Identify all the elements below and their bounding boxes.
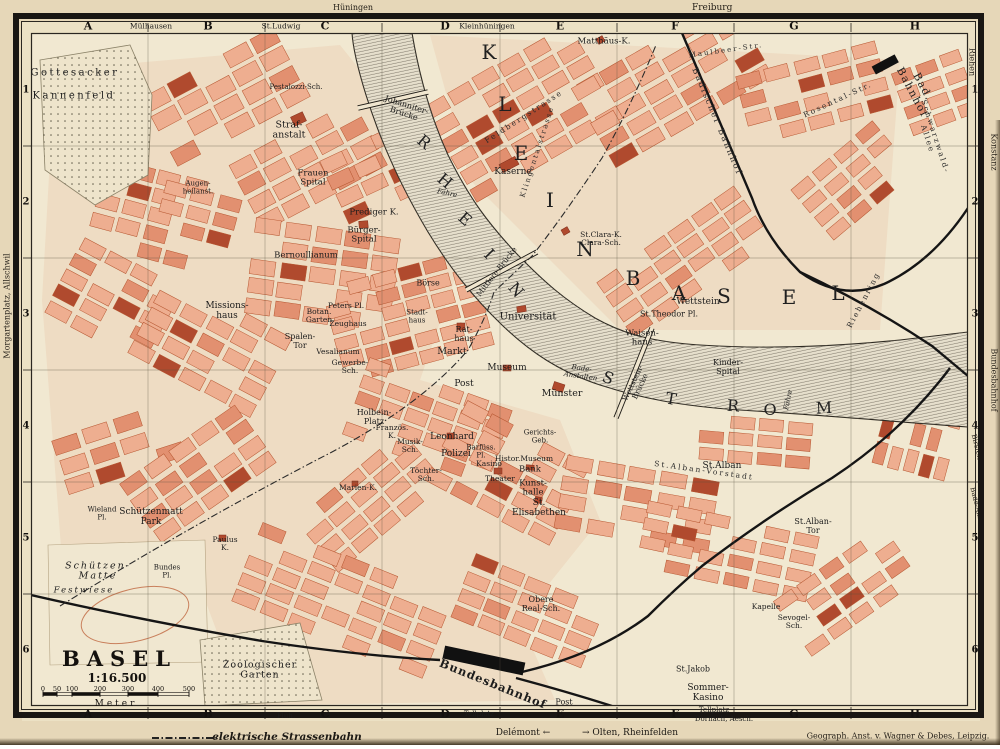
- map-sheet: Hüningen Freiburg Morgartenplatz, Allsch…: [0, 0, 1000, 745]
- map-scale-ratio: 1:16.500: [88, 671, 147, 685]
- exit-freiburg: Freiburg: [692, 3, 732, 13]
- exit-olten-rheinfelden: → Olten, Rheinfelden: [582, 728, 678, 738]
- map-border-frame: [13, 13, 984, 718]
- exit-morgartenplatz-allschwil: Morgartenplatz, Allschwil: [3, 253, 12, 358]
- map-title: BASEL: [62, 646, 177, 671]
- page-edge-shadow-bottom: [0, 738, 1000, 745]
- exit-delemont: Delémont ←: [496, 728, 551, 738]
- exit-huningen: Hüningen: [333, 3, 373, 12]
- map-scale-unit: Meter: [95, 699, 138, 709]
- page-edge-shadow-right: [995, 120, 1000, 745]
